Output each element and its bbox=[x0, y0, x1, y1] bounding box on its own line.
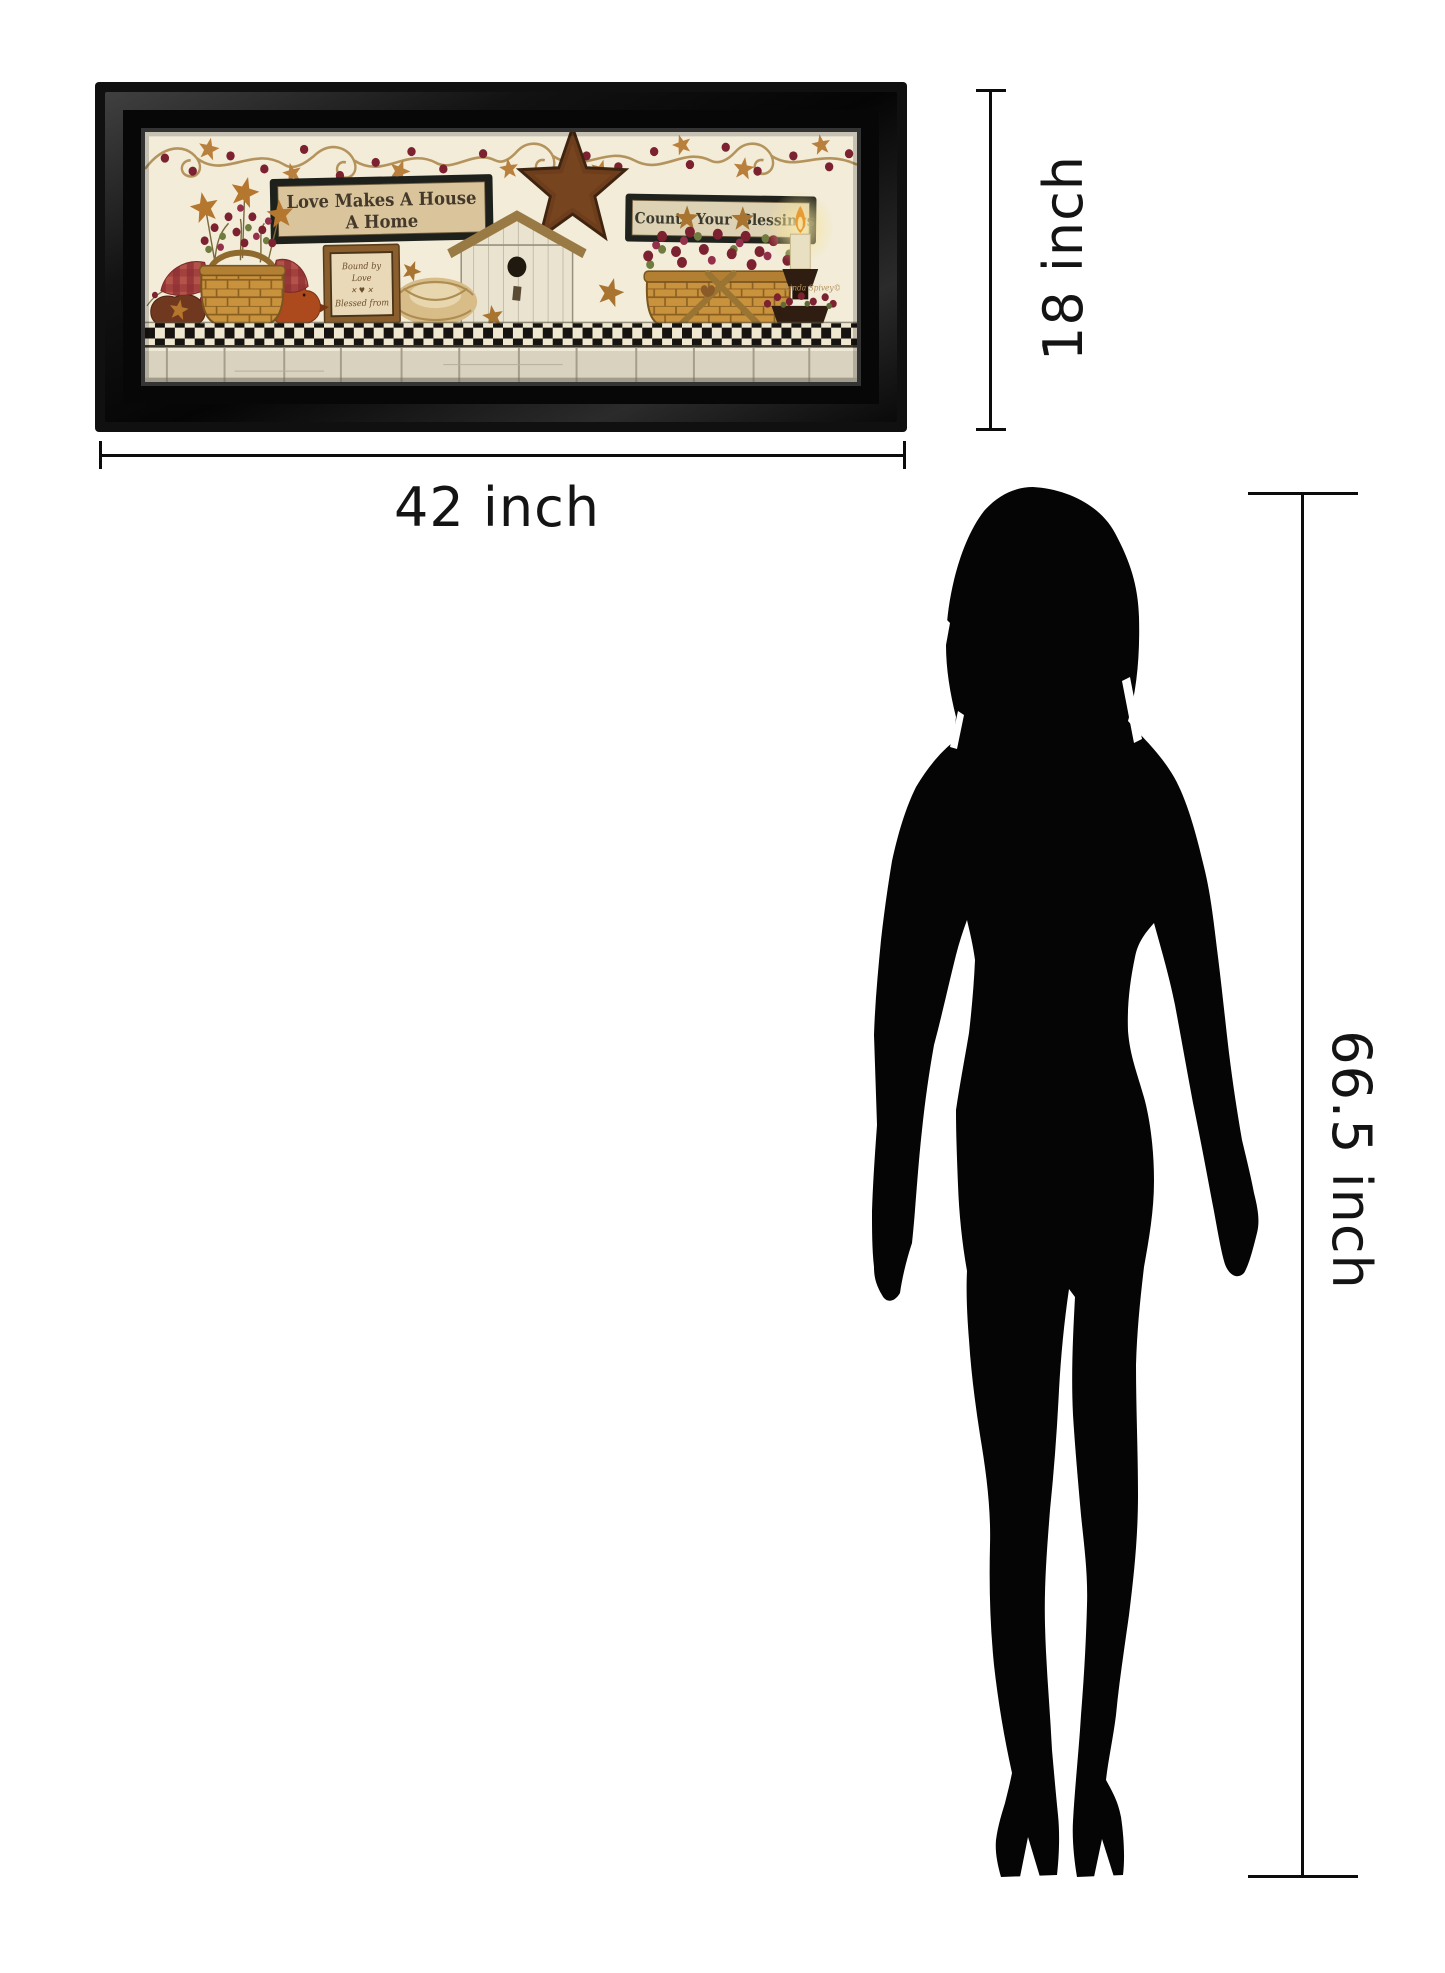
silhouette-body bbox=[872, 487, 1258, 1877]
person-height-bottom-cap bbox=[1248, 1875, 1358, 1878]
artist-signature: Linda Spivey© bbox=[784, 283, 841, 292]
sign-small-line3: ✕ ♥ ✕ bbox=[351, 285, 374, 295]
sign-bound-by-love: Bound by Love ✕ ♥ ✕ Blessed from bbox=[323, 244, 400, 324]
width-dimension-left-tick bbox=[99, 441, 102, 469]
checkerboard-trim bbox=[145, 323, 857, 345]
artwork-illustration: Love Makes A House A Home bbox=[145, 132, 857, 382]
product-dimension-diagram: Love Makes A House A Home bbox=[0, 0, 1445, 1973]
sign-main-line2: A Home bbox=[344, 211, 418, 234]
sign-blessings-word2: Your bbox=[695, 210, 732, 228]
sign-love-makes-a-house: Love Makes A House A Home bbox=[270, 174, 494, 244]
sign-small-line1: Bound by bbox=[341, 261, 381, 272]
person-height-top-cap bbox=[1248, 492, 1358, 495]
artwork-canvas: Love Makes A House A Home bbox=[145, 132, 857, 382]
picture-frame: Love Makes A House A Home bbox=[95, 82, 907, 432]
width-dimension-label: 42 inch bbox=[397, 472, 597, 542]
height-dimension-bottom-cap bbox=[976, 428, 1006, 431]
wood-shelf bbox=[145, 347, 857, 382]
width-dimension-right-tick bbox=[903, 441, 906, 469]
sign-small-line2: Love bbox=[351, 273, 372, 284]
height-dimension-top-cap bbox=[976, 89, 1006, 92]
woman-silhouette bbox=[872, 485, 1264, 1885]
width-dimension-line bbox=[100, 454, 906, 457]
bird-nest bbox=[394, 278, 478, 326]
sign-blessings-word1: Count bbox=[634, 210, 681, 228]
height-dimension-label: 18 inch bbox=[963, 158, 1163, 358]
sign-small-line4: Blessed from bbox=[334, 298, 389, 309]
sign-main-line1: Love Makes A House bbox=[286, 188, 476, 213]
